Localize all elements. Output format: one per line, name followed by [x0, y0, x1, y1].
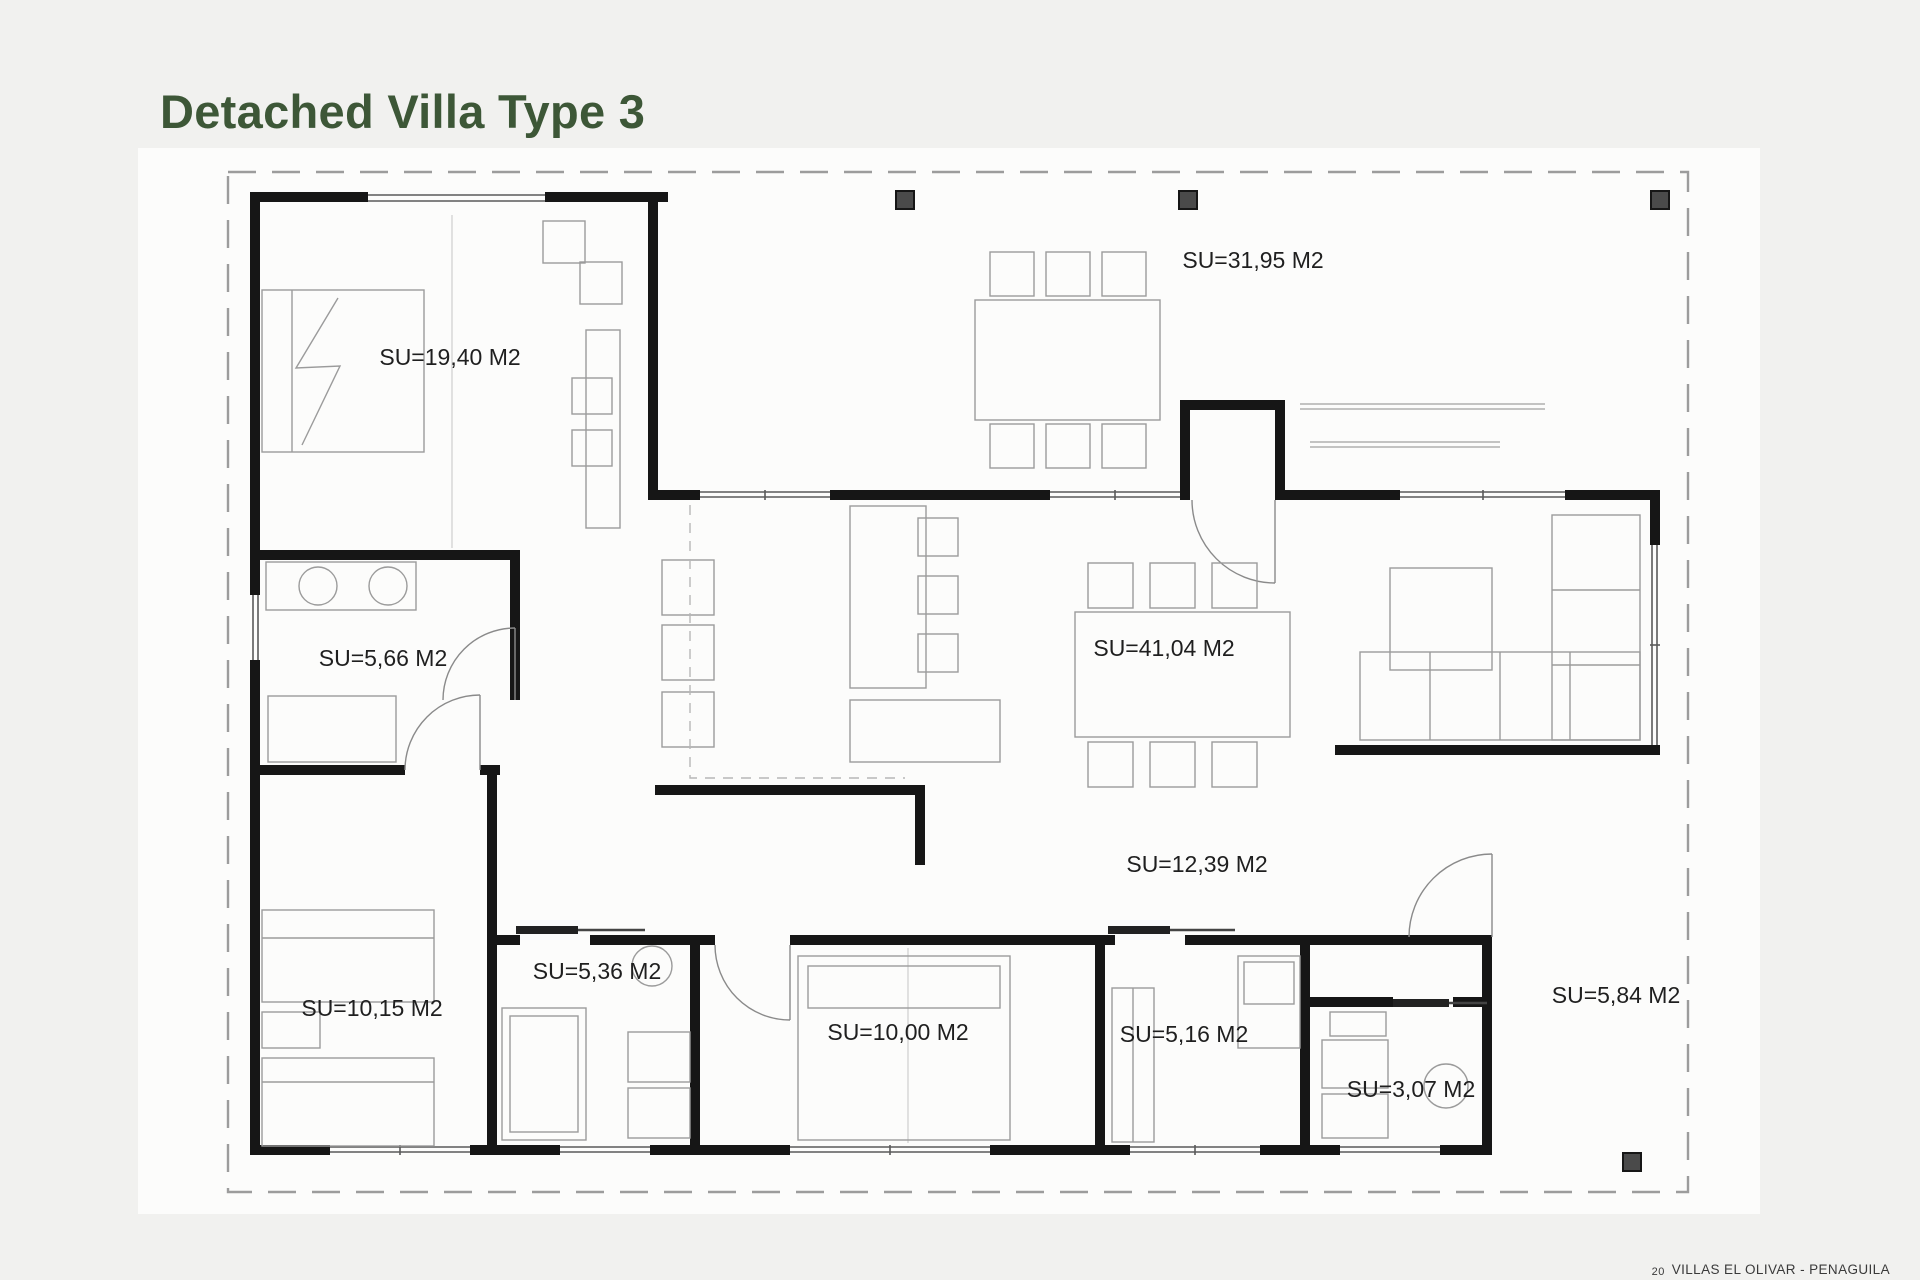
door-arc-bedroom-2 [405, 695, 480, 770]
room-labels: SU=19,40 M2 SU=31,95 M2 SU=5,66 M2 SU=41… [301, 247, 1680, 1102]
footer: 20VILLAS EL OLIVAR - PENAGUILA [1652, 1262, 1890, 1277]
terrace-pillars [896, 191, 1669, 1171]
pillar-icon [896, 191, 914, 209]
furniture-dining [1075, 563, 1290, 787]
chair [1150, 563, 1195, 608]
chair [1212, 742, 1257, 787]
chair [1088, 563, 1133, 608]
kitchen-island [850, 506, 926, 688]
room-label-bathroom-3: SU=5,16 M2 [1120, 1021, 1249, 1047]
counter-dashed-line [690, 505, 905, 778]
wardrobe [586, 330, 620, 528]
furniture-terrace [975, 252, 1160, 468]
door-arc-entry [1192, 500, 1275, 583]
furniture-laundry-wc [1322, 1012, 1468, 1138]
room-label-laundry-wc: SU=3,07 M2 [1347, 1076, 1476, 1102]
room-label-bathroom-2: SU=5,36 M2 [533, 958, 662, 984]
sink-basin [369, 567, 407, 605]
bar-stool [918, 576, 958, 614]
pillow-lines [296, 298, 340, 445]
furniture-living [1360, 515, 1640, 740]
pillar-icon [1651, 191, 1669, 209]
vanity-counter [266, 562, 416, 610]
floor-plan: SU=19,40 M2 SU=31,95 M2 SU=5,66 M2 SU=41… [0, 0, 1920, 1280]
furniture-kitchen [662, 505, 1000, 778]
room-label-bedroom-2: SU=10,15 M2 [301, 995, 442, 1021]
chair [990, 424, 1034, 468]
door-arc-bedroom-3 [715, 945, 790, 1020]
room-label-living-dining-kitchen: SU=41,04 M2 [1093, 635, 1234, 661]
room-label-hallway: SU=12,39 M2 [1126, 851, 1267, 877]
furniture-bedroom-3 [798, 956, 1010, 1140]
chair [1088, 742, 1133, 787]
bar-stool [918, 518, 958, 556]
chair [1150, 742, 1195, 787]
chair [1102, 252, 1146, 296]
chair [1046, 424, 1090, 468]
page: { "page": { "title": "Detached Villa Typ… [0, 0, 1920, 1280]
shower [502, 1008, 586, 1140]
sofa [1552, 515, 1640, 740]
room-label-master-bedroom: SU=19,40 M2 [379, 344, 520, 370]
chair [990, 252, 1034, 296]
sink-basin [299, 567, 337, 605]
furniture-master-bedroom [262, 221, 622, 528]
furniture-bedroom-2 [262, 910, 434, 1146]
bed-double [262, 290, 424, 452]
coffee-table [1390, 568, 1492, 670]
pillar-icon [1623, 1153, 1641, 1171]
door-arc-ensuite [443, 628, 515, 700]
chair [1102, 424, 1146, 468]
bed-double [798, 956, 1010, 1140]
walls [250, 192, 1660, 1155]
room-label-terrace: SU=31,95 M2 [1182, 247, 1323, 273]
outdoor-table [975, 300, 1160, 420]
footer-project-name: VILLAS EL OLIVAR - PENAGUILA [1672, 1262, 1890, 1277]
footer-page-number: 20 [1652, 1266, 1665, 1278]
bed-single [262, 910, 434, 1002]
pillow-band [808, 966, 1000, 1008]
bed-single [262, 1058, 434, 1146]
furniture-bathroom-3 [1112, 956, 1300, 1142]
room-label-porch: SU=5,84 M2 [1552, 982, 1681, 1008]
chair [1046, 252, 1090, 296]
chair [1212, 563, 1257, 608]
room-label-ensuite-bathroom: SU=5,66 M2 [319, 645, 448, 671]
door-arc-porch [1409, 854, 1492, 937]
pillar-icon [1179, 191, 1197, 209]
bar-stool [918, 634, 958, 672]
dining-table [1075, 612, 1290, 737]
windows [253, 195, 1660, 1155]
closet [268, 696, 396, 762]
room-label-bedroom-3: SU=10,00 M2 [827, 1019, 968, 1045]
